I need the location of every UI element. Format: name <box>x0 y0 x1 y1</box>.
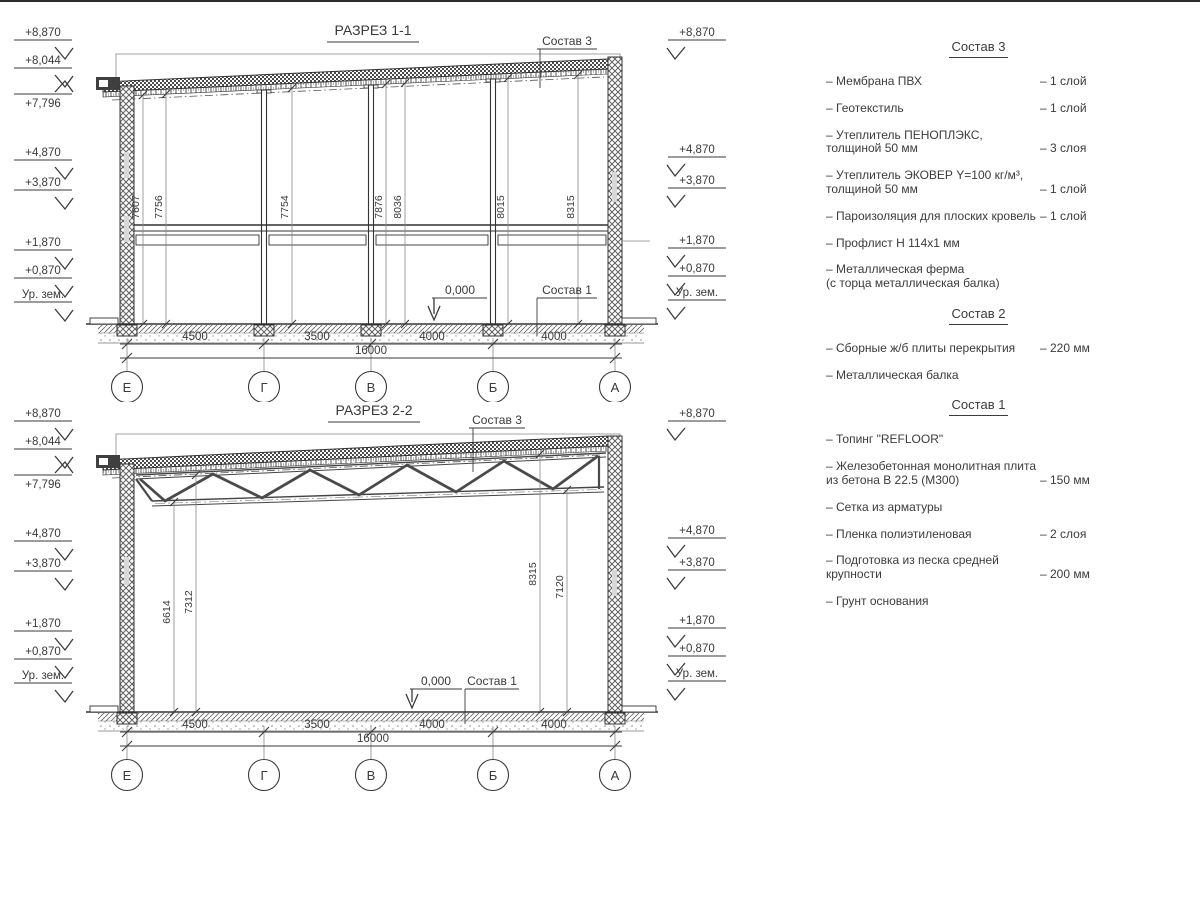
svg-text:+1,870: +1,870 <box>25 237 61 249</box>
svg-text:+0,870: +0,870 <box>679 263 715 275</box>
svg-text:7120: 7120 <box>554 575 566 599</box>
svg-text:7876: 7876 <box>373 195 385 219</box>
svg-text:+3,870: +3,870 <box>679 557 715 569</box>
svg-text:Г: Г <box>260 380 267 395</box>
svg-text:3500: 3500 <box>304 719 330 731</box>
svg-text:+8,870: +8,870 <box>25 27 61 39</box>
svg-text:8315: 8315 <box>527 562 539 586</box>
svg-text:7754: 7754 <box>279 195 291 219</box>
svg-text:+3,870: +3,870 <box>25 177 61 189</box>
svg-text:В: В <box>367 380 376 395</box>
svg-text:РАЗРЕЗ 1-1: РАЗРЕЗ 1-1 <box>335 22 412 38</box>
legend-item: – Топинг "REFLOOR" <box>826 433 1131 447</box>
svg-text:Б: Б <box>489 768 498 783</box>
legend-title: Состав 2 <box>826 307 1131 325</box>
svg-text:6614: 6614 <box>161 600 173 624</box>
svg-text:Ур. зем.: Ур. зем. <box>676 668 718 680</box>
legend-item: – Металлическая ферма (с торца металличе… <box>826 263 1131 291</box>
elevation-marks-left: +8,870 +8,044 +7,796 +4,870 +3,870 +1,87… <box>14 27 73 321</box>
svg-text:0,000: 0,000 <box>421 674 451 688</box>
vertical-dimensions: 7607 7756 7754 7876 8036 8015 8315 <box>130 71 582 328</box>
svg-text:Ур. зем.: Ур. зем. <box>676 287 718 299</box>
svg-text:4000: 4000 <box>541 331 567 343</box>
svg-text:4500: 4500 <box>182 331 208 343</box>
legend-item: – Сетка из арматуры <box>826 501 1131 515</box>
section-title: РАЗРЕЗ 2-2 <box>328 402 420 422</box>
svg-text:+8,870: +8,870 <box>679 408 715 420</box>
svg-text:+4,870: +4,870 <box>25 528 61 540</box>
axis-bubbles: Е Г В Б А <box>112 372 631 403</box>
svg-text:+4,870: +4,870 <box>25 147 61 159</box>
axis-bubbles: Е Г В Б А <box>112 760 631 791</box>
svg-text:7312: 7312 <box>183 590 195 614</box>
svg-text:+8,870: +8,870 <box>679 27 715 39</box>
legend-item: – Геотекстиль– 1 слой <box>826 102 1131 116</box>
svg-text:Е: Е <box>123 768 132 783</box>
legend-item: – Металлическая балка <box>826 369 1131 383</box>
svg-text:А: А <box>611 380 620 395</box>
svg-text:+1,870: +1,870 <box>679 615 715 627</box>
svg-text:+0,870: +0,870 <box>679 643 715 655</box>
legend-title: Состав 1 <box>826 398 1131 416</box>
svg-text:+8,044: +8,044 <box>25 55 61 67</box>
legend-sostav-2: Состав 2 – Сборные ж/б плиты перекрытия–… <box>826 307 1131 383</box>
svg-text:8015: 8015 <box>495 195 507 219</box>
legend-sostav-3: Состав 3 – Мембрана ПВХ– 1 слой – Геотек… <box>826 40 1131 291</box>
svg-text:7607: 7607 <box>130 195 142 219</box>
legend-item: – Железобетонная монолитная плита из бет… <box>826 460 1131 488</box>
svg-text:4000: 4000 <box>541 719 567 731</box>
svg-text:Состав 3: Состав 3 <box>542 34 592 48</box>
svg-text:8315: 8315 <box>565 195 577 219</box>
legend-item: – Пароизоляция для плоских кровель– 1 сл… <box>826 210 1131 224</box>
svg-text:+1,870: +1,870 <box>25 618 61 630</box>
svg-text:+7,796: +7,796 <box>25 98 61 110</box>
mezzanine-slab <box>134 225 650 245</box>
svg-text:16000: 16000 <box>355 345 387 357</box>
zero-level-mark: 0,000 <box>406 674 462 708</box>
svg-text:Состав 1: Состав 1 <box>467 674 517 688</box>
svg-text:4000: 4000 <box>419 719 445 731</box>
legend-item: – Подготовка из песка средней крупности–… <box>826 554 1131 582</box>
roof <box>96 59 608 100</box>
zero-level-mark: 0,000 <box>428 283 487 320</box>
svg-text:+0,870: +0,870 <box>25 265 61 277</box>
svg-text:В: В <box>367 768 376 783</box>
svg-text:+8,044: +8,044 <box>25 436 61 448</box>
elevation-marks-right: +8,870 +4,870 +3,870 +1,870 +0,870 Ур. з… <box>667 27 726 319</box>
left-wall <box>120 464 134 712</box>
svg-text:+0,870: +0,870 <box>25 646 61 658</box>
elevation-marks-left: +8,870 +8,044 +7,796 +4,870 +3,870 +1,87… <box>14 408 73 702</box>
legend-item: – Утеплитель ПЕНОПЛЭКС, толщиной 50 мм– … <box>826 129 1131 157</box>
svg-text:+1,870: +1,870 <box>679 235 715 247</box>
svg-text:+8,870: +8,870 <box>25 408 61 420</box>
svg-text:16000: 16000 <box>357 733 389 745</box>
legend-item: – Профлист Н 114х1 мм <box>826 237 1131 251</box>
svg-text:8036: 8036 <box>392 195 404 219</box>
materials-legend: Состав 3 – Мембрана ПВХ– 1 слой – Геотек… <box>826 40 1131 625</box>
svg-text:+7,796: +7,796 <box>25 479 61 491</box>
legend-item: – Мембрана ПВХ– 1 слой <box>826 75 1131 89</box>
svg-text:Ур. зем.: Ур. зем. <box>22 670 64 682</box>
svg-text:0,000: 0,000 <box>445 283 475 297</box>
walls <box>120 436 622 712</box>
legend-item: – Сборные ж/б плиты перекрытия– 220 мм <box>826 342 1131 356</box>
section-2-2-drawing: РАЗРЕЗ 2-2 6614 7312 8315 7120 <box>0 402 760 812</box>
section-title: РАЗРЕЗ 1-1 <box>327 22 419 42</box>
legend-item: – Грунт основания <box>826 595 1131 609</box>
svg-text:4500: 4500 <box>182 719 208 731</box>
legend-item: – Утеплитель ЭКОВЕР Y=100 кг/м³, толщино… <box>826 169 1131 197</box>
svg-text:РАЗРЕЗ 2-2: РАЗРЕЗ 2-2 <box>336 402 413 418</box>
legend-item: – Пленка полиэтиленовая– 2 слоя <box>826 528 1131 542</box>
svg-text:Е: Е <box>123 380 132 395</box>
legend-sostav-1: Состав 1 – Топинг "REFLOOR" – Железобето… <box>826 398 1131 608</box>
floor-slab <box>86 706 658 731</box>
drawing-sheet: РАЗРЕЗ 1-1 <box>0 0 1200 902</box>
elevation-marks-right: +8,870 +4,870 +3,870 +1,870 +0,870 Ур. з… <box>667 408 726 700</box>
svg-text:Г: Г <box>260 768 267 783</box>
svg-text:+3,870: +3,870 <box>25 558 61 570</box>
svg-text:Ур. зем.: Ур. зем. <box>22 289 64 301</box>
svg-text:3500: 3500 <box>304 331 330 343</box>
svg-text:7756: 7756 <box>153 195 165 219</box>
svg-text:4000: 4000 <box>419 331 445 343</box>
svg-text:А: А <box>611 768 620 783</box>
svg-text:Состав 3: Состав 3 <box>472 413 522 427</box>
section-1-1-drawing: РАЗРЕЗ 1-1 <box>0 2 760 402</box>
svg-text:Состав 1: Состав 1 <box>542 283 592 297</box>
svg-text:+4,870: +4,870 <box>679 525 715 537</box>
svg-text:Б: Б <box>489 380 498 395</box>
svg-text:+3,870: +3,870 <box>679 175 715 187</box>
svg-text:+4,870: +4,870 <box>679 144 715 156</box>
legend-title: Состав 3 <box>826 40 1131 58</box>
